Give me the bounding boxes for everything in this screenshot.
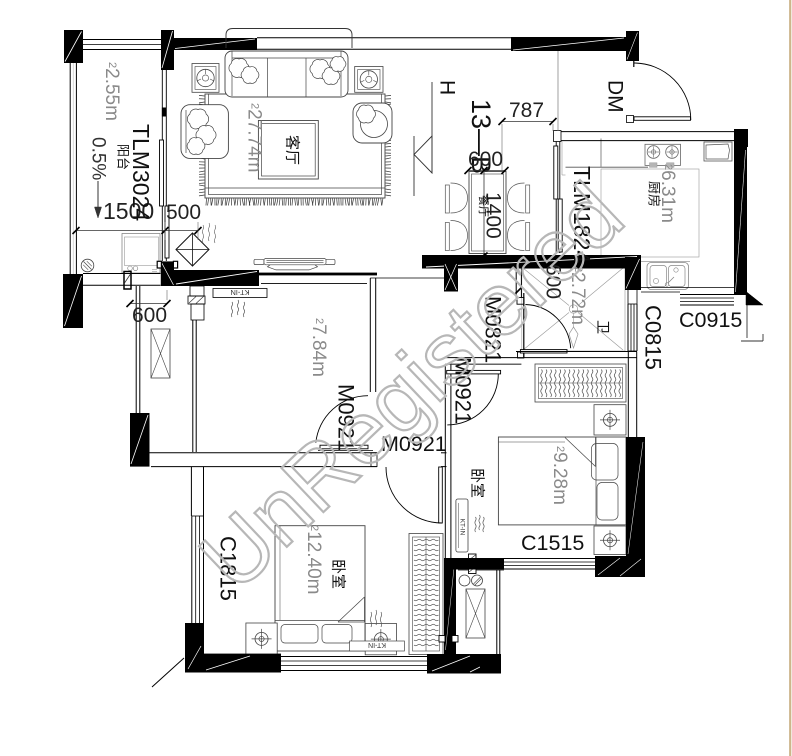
svg-text:787: 787 (509, 99, 544, 122)
svg-text:600: 600 (468, 148, 503, 171)
svg-text:500: 500 (166, 201, 201, 224)
svg-text:C0815: C0815 (641, 305, 666, 370)
svg-text:29.28m: 29.28m (550, 446, 571, 505)
svg-text:0.5%: 0.5% (88, 137, 109, 180)
svg-text:厨房: 厨房 (647, 181, 662, 207)
svg-text:C0915: C0915 (679, 308, 742, 332)
svg-text:餐厅: 餐厅 (477, 195, 491, 217)
svg-text:卫: 卫 (595, 320, 611, 334)
svg-text:DM: DM (604, 80, 627, 113)
svg-text:C1515: C1515 (521, 531, 584, 555)
svg-text:KT-IN: KT-IN (459, 519, 466, 536)
svg-text:H: H (436, 80, 459, 95)
svg-text:卧室: 卧室 (330, 559, 347, 589)
svg-text:600: 600 (132, 304, 167, 327)
svg-text:阳台: 阳台 (116, 144, 131, 170)
svg-text:卧室: 卧室 (469, 468, 486, 498)
svg-text:227.74m: 227.74m (244, 103, 265, 173)
svg-text:KT-IN: KT-IN (230, 288, 249, 297)
svg-text:27.84m: 27.84m (309, 318, 330, 377)
svg-text:KT-IN: KT-IN (368, 641, 386, 648)
svg-text:TLM3024: TLM3024 (128, 124, 154, 221)
svg-text:客厅: 客厅 (284, 135, 301, 165)
svg-text:22.55m: 22.55m (102, 62, 123, 121)
